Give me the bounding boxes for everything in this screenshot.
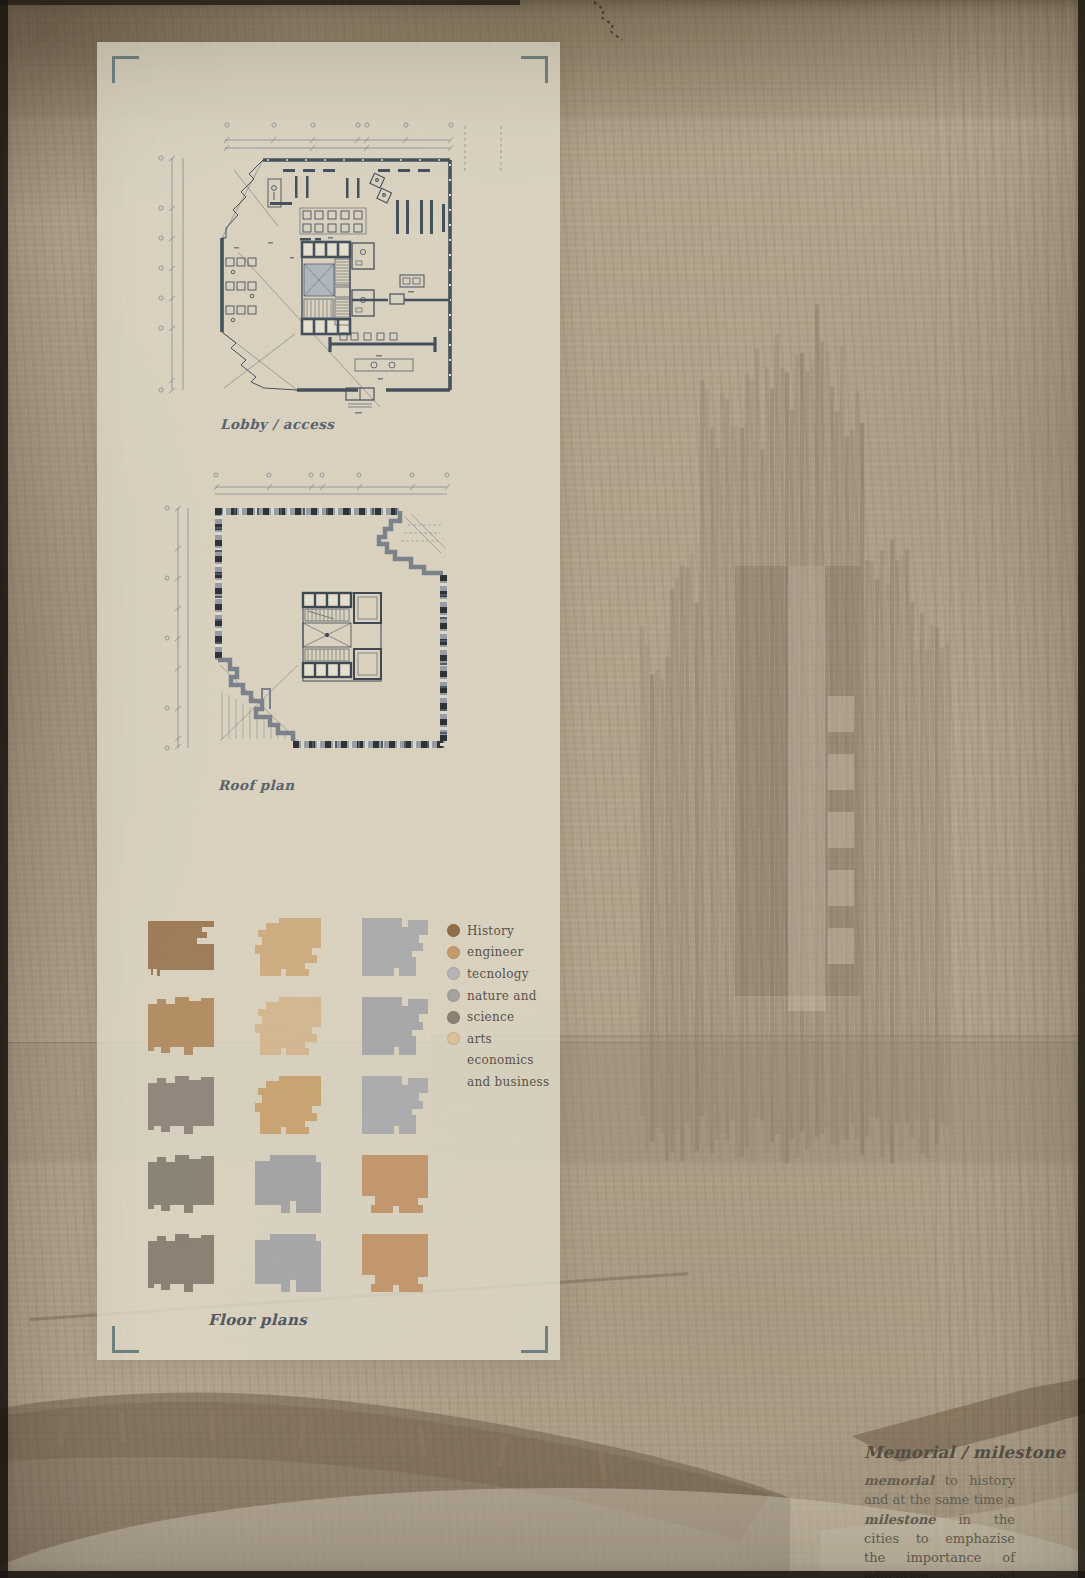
legend-item: engineer <box>447 942 550 964</box>
lobby-plan-label: Lobby / access <box>220 416 334 432</box>
program-legend: Historyengineertecnologynature andscienc… <box>447 920 550 1093</box>
poster-edge <box>0 0 8 1578</box>
floor-tile <box>148 1076 214 1134</box>
legend-item: and business <box>447 1071 550 1093</box>
legend-item: science <box>447 1006 550 1028</box>
floor-tile <box>255 1234 321 1292</box>
legend-label: science <box>467 1010 514 1024</box>
roof-plan-label: Roof plan <box>218 777 294 793</box>
floor-tile <box>255 918 321 976</box>
legend-label: History <box>467 924 514 938</box>
legend-item: arts <box>447 1028 550 1050</box>
floor-tile <box>362 997 428 1055</box>
floor-tile <box>255 997 321 1055</box>
frame-corner-icon <box>112 56 139 83</box>
legend-dot-icon <box>447 946 460 959</box>
roof-plan <box>158 465 478 800</box>
floor-tile <box>148 918 214 976</box>
legend-label: nature and <box>467 989 537 1003</box>
legend-dot-icon <box>447 989 460 1002</box>
floor-tile <box>148 1234 214 1292</box>
legend-label: arts <box>467 1032 492 1046</box>
legend-item: tecnology <box>447 963 550 985</box>
legend-label: engineer <box>467 945 523 959</box>
legend-label: and business <box>467 1075 550 1089</box>
floor-tile <box>255 1155 321 1213</box>
legend-item: economics <box>447 1050 550 1072</box>
legend-dot-icon <box>447 1032 460 1045</box>
legend-item: nature and <box>447 985 550 1007</box>
crack-mark <box>586 0 640 44</box>
floor-tile <box>148 997 214 1055</box>
lobby-floor-plan <box>150 112 506 422</box>
legend-dot-icon <box>447 924 460 937</box>
floor-tile <box>362 918 428 976</box>
memorial-title: Memorial / milestone <box>864 1443 1015 1462</box>
poster: Lobby / access <box>0 0 1085 1578</box>
legend-label: economics <box>467 1053 534 1067</box>
legend-item: History <box>447 920 550 942</box>
memorial-text-block: Memorial / milestone memorial to history… <box>864 1443 1015 1578</box>
memorial-body: memorial to history and at the same time… <box>864 1471 1015 1578</box>
floor-plan-tiles <box>148 918 428 1292</box>
poster-edge <box>0 0 520 5</box>
poster-edge <box>1078 0 1085 1578</box>
legend-dot-icon <box>447 967 460 980</box>
frame-corner-icon <box>521 56 548 83</box>
poster-edge <box>0 1571 1085 1578</box>
floor-tile <box>362 1155 428 1213</box>
floor-tile <box>148 1155 214 1213</box>
floor-tile <box>362 1076 428 1134</box>
floor-plans-label: Floor plans <box>208 1311 307 1329</box>
frame-corner-icon <box>521 1326 548 1353</box>
legend-dot-icon <box>447 1011 460 1024</box>
floor-tile <box>255 1076 321 1134</box>
floor-tile <box>362 1234 428 1292</box>
legend-label: tecnology <box>467 967 529 981</box>
frame-corner-icon <box>112 1326 139 1353</box>
